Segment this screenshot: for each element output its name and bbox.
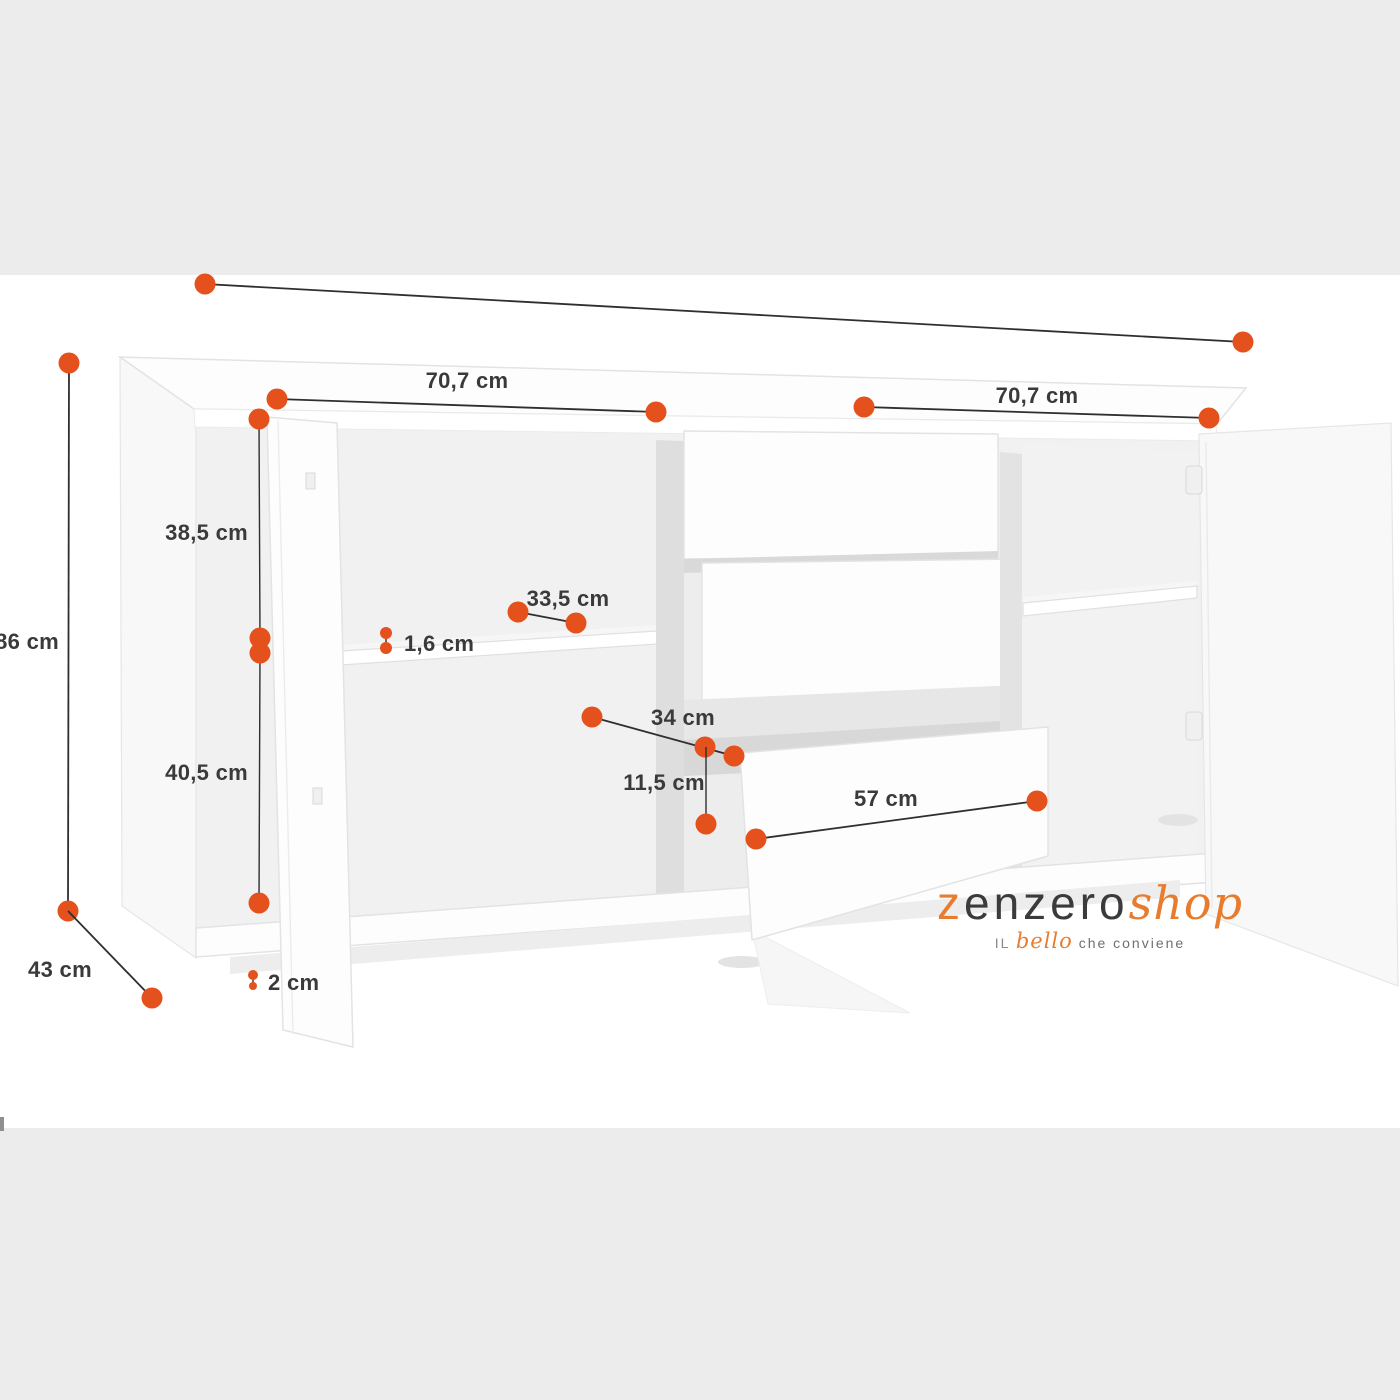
dimension-label-width-left: 70,7 cm [426, 368, 509, 393]
dimension-dot [646, 402, 667, 423]
drawer-top-front [684, 431, 998, 559]
left-door-hinge-bottom [313, 788, 322, 804]
diagram-canvas: 70,7 cm 70,7 cm 86 cm 43 cm 38,5 cm [0, 0, 1400, 1400]
dimension-dot [854, 397, 875, 418]
top-gray-band [0, 0, 1400, 275]
dimension-label-shelf-depth: 33,5 cm [527, 586, 610, 611]
brand-logo-shop: shop [1129, 876, 1243, 930]
dimension-label-drawer-depth: 34 cm [651, 705, 715, 730]
dimension-dot [249, 893, 270, 914]
dimension-dot [1233, 332, 1254, 353]
brand-logo-wordmark: zenzeroshop [905, 880, 1275, 926]
brand-tagline-il: IL [995, 935, 1010, 951]
bottom-gray-band [0, 1128, 1400, 1400]
brand-logo: zenzeroshop IL bello che conviene [905, 880, 1275, 953]
edge-artifact-mark [0, 1117, 4, 1131]
dimension-label-plinth-height: 2 cm [268, 970, 319, 995]
cabinet-foot-right [1158, 814, 1198, 826]
right-door-hinge-bottom [1186, 712, 1202, 740]
brand-logo-enzero: enzero [964, 877, 1129, 929]
left-door-hinge-top [306, 473, 315, 489]
dimension-dot [695, 737, 716, 758]
product-dimension-diagram: 70,7 cm 70,7 cm 86 cm 43 cm 38,5 cm [0, 0, 1400, 1400]
dimension-dot [142, 988, 163, 1009]
dimension-dot [696, 814, 717, 835]
right-door-hinge-top [1186, 466, 1202, 494]
dimension-dot [249, 409, 270, 430]
dimension-dot [250, 643, 271, 664]
dimension-dot [724, 746, 745, 767]
dimension-label-drawer-width: 57 cm [854, 786, 918, 811]
dimension-dot [195, 274, 216, 295]
dimension-dot [1199, 408, 1220, 429]
dimension-dot [746, 829, 767, 850]
dimension-dot [380, 627, 392, 639]
dimension-dot [582, 707, 603, 728]
dimension-dot [267, 389, 288, 410]
cabinet-left-side-panel [120, 357, 196, 958]
middle-partition [656, 440, 684, 903]
dimension-label-upper-section: 38,5 cm [165, 520, 248, 545]
brand-logo-z: z [937, 877, 964, 929]
dimension-dot [508, 602, 529, 623]
dimension-dot [1027, 791, 1048, 812]
dimension-dot [380, 642, 392, 654]
dimension-dot [248, 970, 258, 980]
dimension-label-lower-section: 40,5 cm [165, 760, 248, 785]
dimension-label-depth-total: 43 cm [28, 957, 92, 982]
dimension-label-width-right: 70,7 cm [996, 383, 1079, 408]
brand-tagline-che-conviene: che conviene [1079, 935, 1186, 951]
drawer-middle-front [702, 559, 1018, 709]
brand-logo-tagline: IL bello che conviene [905, 929, 1275, 953]
dimension-label-drawer-inner-height: 11,5 cm [623, 770, 705, 795]
left-compartment-back [340, 432, 658, 928]
brand-tagline-bello: bello [1016, 929, 1073, 953]
dimension-dot [59, 353, 80, 374]
dimension-label-height-total: 86 cm [0, 629, 59, 654]
dimension-dot [249, 982, 257, 990]
dimension-dot [566, 613, 587, 634]
dimension-label-shelf-thickness: 1,6 cm [404, 631, 474, 656]
